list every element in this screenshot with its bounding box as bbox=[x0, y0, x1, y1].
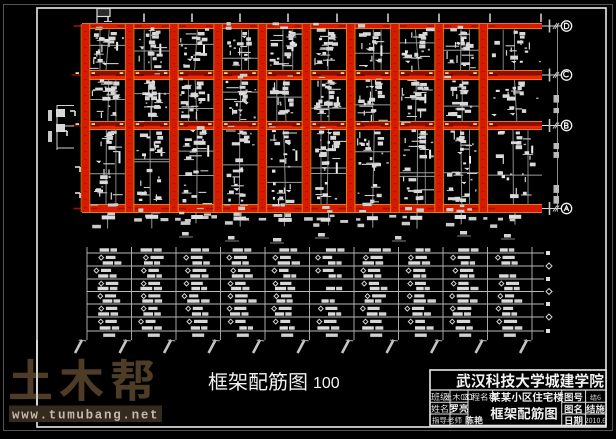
svg-text:100: 100 bbox=[313, 375, 340, 392]
svg-text:www.tumubang.net: www.tumubang.net bbox=[12, 409, 159, 423]
